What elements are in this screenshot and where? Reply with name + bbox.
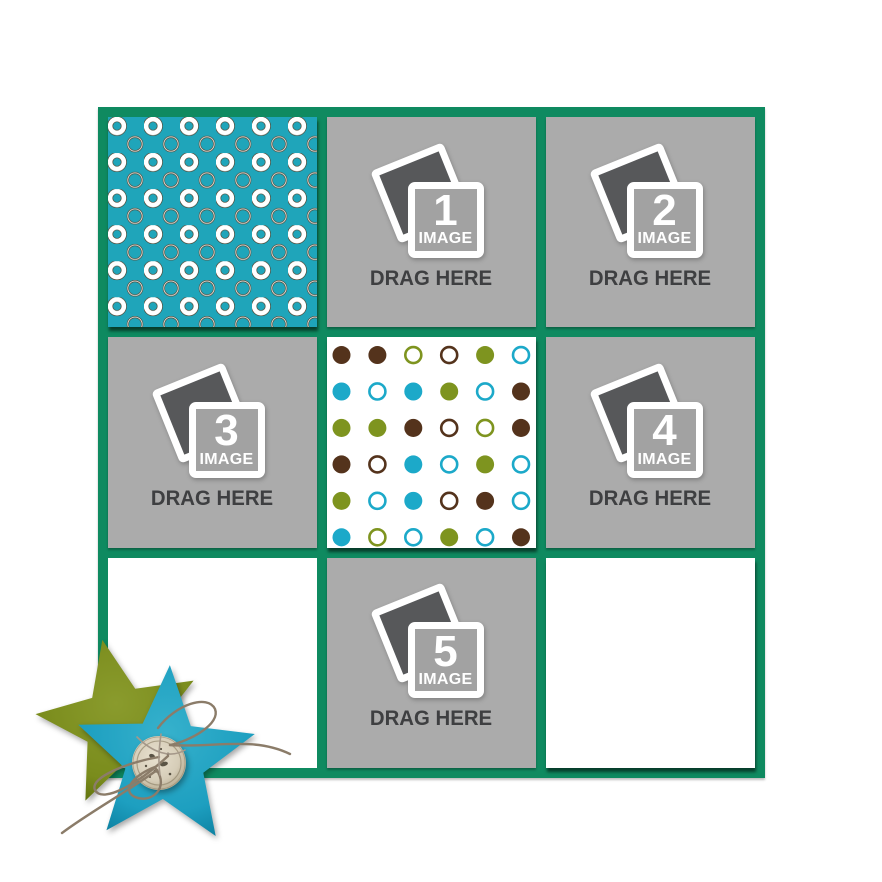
photo-stack-icon: 1 IMAGE <box>362 154 512 260</box>
photo-slot-3[interactable]: 3 IMAGE DRAG HERE <box>108 337 317 547</box>
photo-stack-icon: 3 IMAGE <box>143 374 293 480</box>
paper-polka-dots <box>327 337 536 547</box>
front-photo-icon: 4 IMAGE <box>627 402 703 478</box>
photo-slot-1[interactable]: 1 IMAGE DRAG HERE <box>327 117 536 327</box>
front-photo-icon: 3 IMAGE <box>189 402 265 478</box>
paper-lattice <box>546 558 755 768</box>
slot-number: 2 <box>652 191 676 231</box>
slot-number: 3 <box>214 411 238 451</box>
image-label: IMAGE <box>638 451 692 469</box>
drag-here-label: DRAG HERE <box>370 267 492 291</box>
photo-stack-icon: 4 IMAGE <box>581 374 731 480</box>
photo-slot-5[interactable]: 5 IMAGE DRAG HERE <box>327 558 536 768</box>
photo-slot-4[interactable]: 4 IMAGE DRAG HERE <box>546 337 755 547</box>
front-photo-icon: 1 IMAGE <box>408 182 484 258</box>
front-photo-icon: 2 IMAGE <box>627 182 703 258</box>
slot-number: 4 <box>652 411 676 451</box>
image-label: IMAGE <box>638 230 692 248</box>
slot-number: 5 <box>433 632 457 672</box>
image-label: IMAGE <box>419 671 473 689</box>
image-label: IMAGE <box>419 230 473 248</box>
drag-here-label: DRAG HERE <box>589 487 711 511</box>
front-photo-icon: 5 IMAGE <box>408 622 484 698</box>
star-cluster-decoration <box>18 628 318 868</box>
photo-stack-icon: 2 IMAGE <box>581 154 731 260</box>
drag-here-label: DRAG HERE <box>151 487 273 511</box>
paper-teal-rings <box>108 117 317 327</box>
drag-here-label: DRAG HERE <box>370 707 492 731</box>
teal-rings-pattern <box>108 117 317 327</box>
collage-template-canvas: 1 IMAGE DRAG HERE 2 IMAGE DRAG HERE <box>0 0 882 882</box>
drag-here-label: DRAG HERE <box>589 267 711 291</box>
photo-slot-2[interactable]: 2 IMAGE DRAG HERE <box>546 117 755 327</box>
slot-number: 1 <box>433 191 457 231</box>
photo-stack-icon: 5 IMAGE <box>362 594 512 700</box>
polka-dots-pattern <box>327 337 536 547</box>
image-label: IMAGE <box>200 451 254 469</box>
